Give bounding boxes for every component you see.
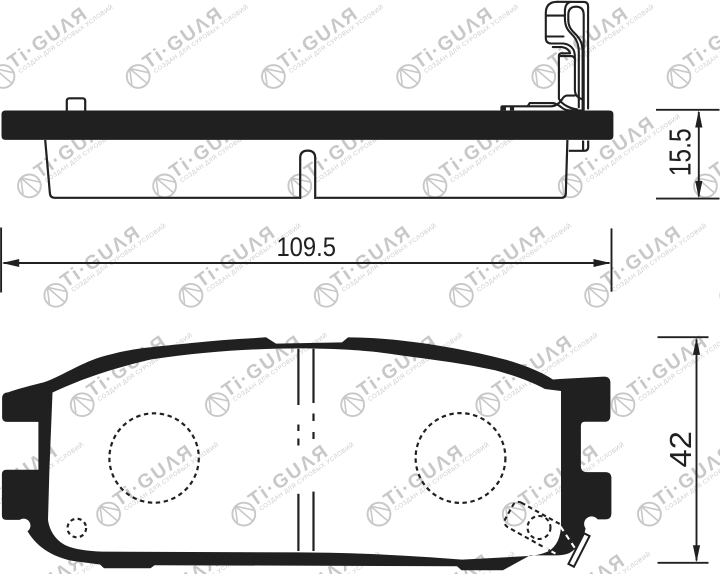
svg-text:15.5: 15.5	[663, 128, 698, 176]
svg-text:42: 42	[663, 431, 698, 467]
svg-text:109.5: 109.5	[276, 232, 336, 262]
